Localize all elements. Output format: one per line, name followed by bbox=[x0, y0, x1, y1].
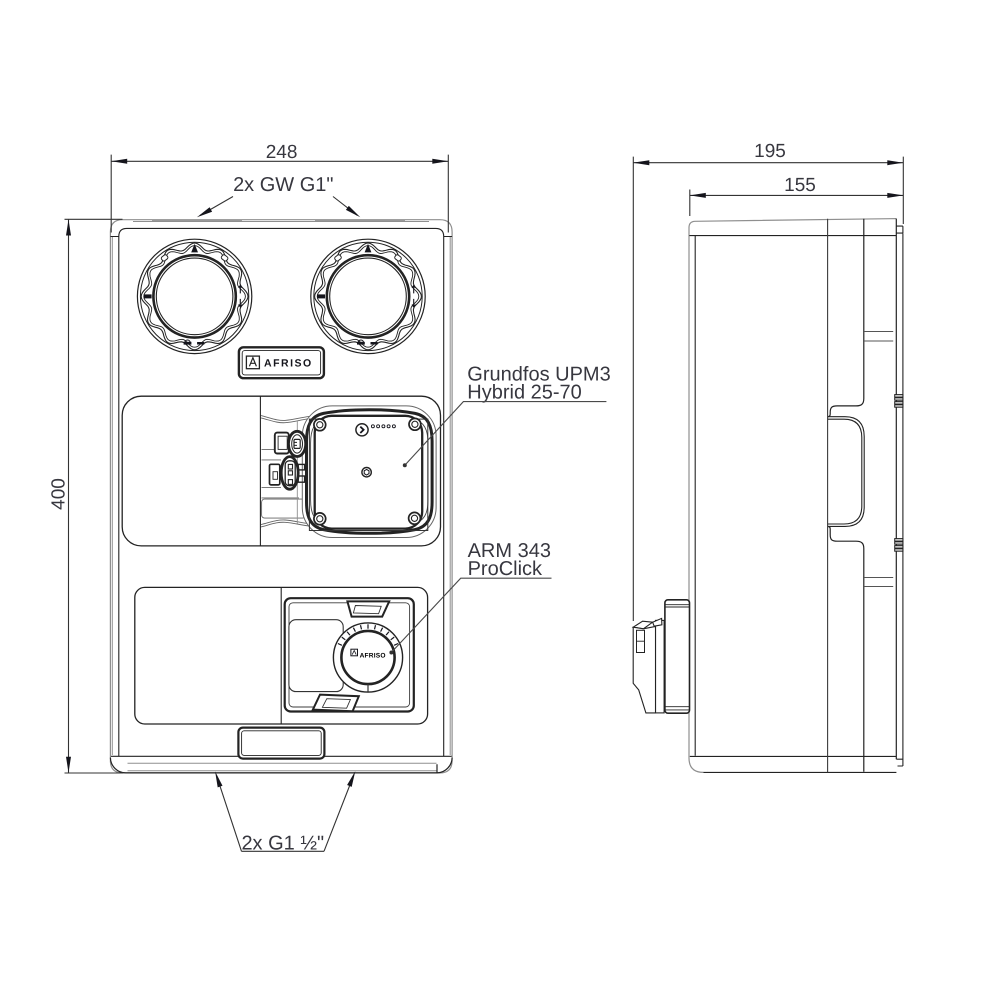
svg-text:400: 400 bbox=[48, 478, 69, 510]
svg-text:AFRISO: AFRISO bbox=[264, 358, 313, 370]
svg-text:ProClick: ProClick bbox=[468, 558, 543, 580]
svg-text:AFRISO: AFRISO bbox=[360, 653, 386, 660]
svg-text:195: 195 bbox=[754, 141, 786, 162]
svg-text:2x GW G1": 2x GW G1" bbox=[233, 174, 333, 196]
svg-text:248: 248 bbox=[266, 142, 298, 163]
svg-text:Hybrid 25-70: Hybrid 25-70 bbox=[467, 382, 582, 404]
svg-text:155: 155 bbox=[784, 175, 816, 196]
